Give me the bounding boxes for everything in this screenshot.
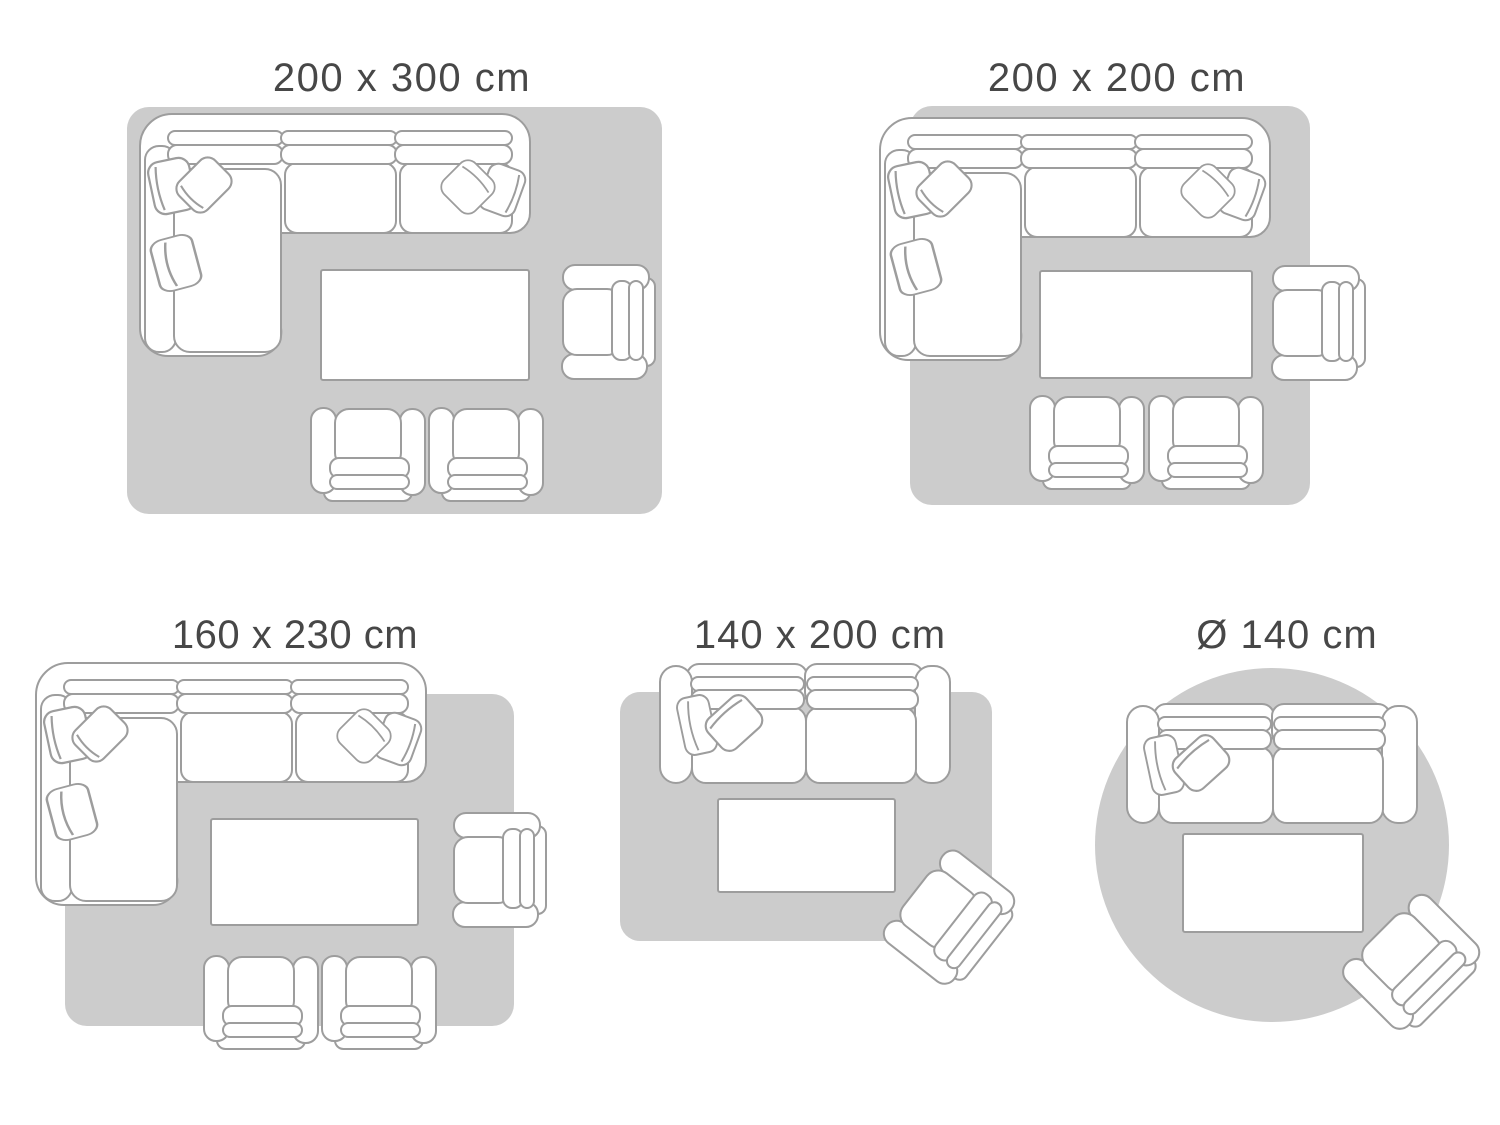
svg-text:200 x 200 cm: 200 x 200 cm — [988, 56, 1246, 100]
svg-text:140 x 200 cm: 140 x 200 cm — [694, 613, 946, 657]
svg-text:Ø 140 cm: Ø 140 cm — [1196, 613, 1377, 657]
svg-text:160 x 230 cm: 160 x 230 cm — [172, 613, 418, 657]
svg-text:200 x 300 cm: 200 x 300 cm — [273, 56, 531, 100]
